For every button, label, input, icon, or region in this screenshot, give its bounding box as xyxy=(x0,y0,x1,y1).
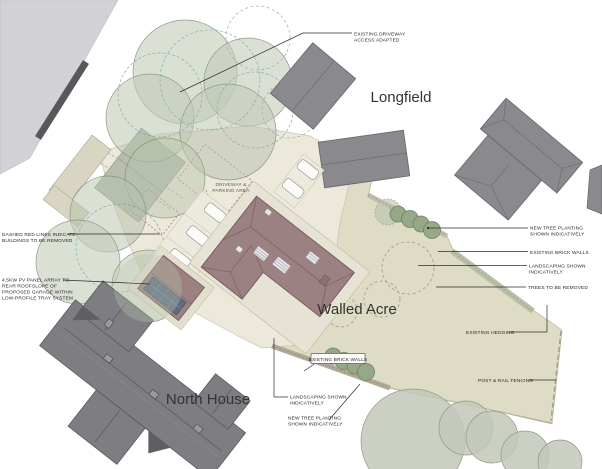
site-plan-svg: EXISTING DRIVEWAY ACCESS ADAPTED DASHED … xyxy=(0,0,602,469)
annotation-new-tree-right: NEW TREE PLANTING xyxy=(530,226,583,232)
annotation-new-tree-right: SHOWN INDICATIVELY xyxy=(530,232,585,238)
annotation-new-tree-bottom: NEW TREE PLANTING xyxy=(288,416,341,422)
annotation-post-rail: POST & RAIL FENCING xyxy=(478,378,533,384)
new-tree xyxy=(424,222,441,239)
leader-new-tree-bottom xyxy=(329,384,360,420)
label-longfield: Longfield xyxy=(371,89,432,106)
annotation-driveway-access: EXISTING DRIVEWAY xyxy=(354,32,406,38)
annotation-brick-walls-bottom: EXISTING BRICK WALLS xyxy=(309,357,368,363)
new-tree xyxy=(358,364,375,381)
annotation-hedging: EXISTING HEDGING xyxy=(466,330,515,336)
annotation-dashed-red: DASHED RED LINES INDICATE xyxy=(2,232,76,238)
annotation-landscaping-bottom: LANDSCAPING SHOWN xyxy=(290,395,347,401)
annotation-pv-panel: REAR ROOFSLOPE OF xyxy=(2,284,57,290)
leader-dot xyxy=(427,227,429,229)
leader-brick-walls-bottom xyxy=(304,364,315,372)
tree-canopy-overlay xyxy=(114,254,182,322)
annotation-landscaping-bottom: INDICATIVELY xyxy=(290,401,325,407)
label-driveway-parking: DRIVEWAY & xyxy=(216,182,248,188)
label-north-house: North House xyxy=(166,391,250,408)
label-driveway-parking: PARKING AREA xyxy=(212,188,250,194)
annotation-trees-removed: TREES TO BE REMOVED xyxy=(528,285,588,291)
annotation-brick-walls-right: EXISTING BRICK WALLS xyxy=(530,250,589,256)
longfield-barn-roof xyxy=(318,130,410,188)
annotation-pv-panel: LOW-PROFILE TRAY SYSTEM xyxy=(2,296,73,302)
annotation-dashed-red: BUILDINGS TO BE REMOVED xyxy=(2,238,73,244)
neighbour-building-edge xyxy=(587,165,602,214)
annotation-landscaping-right: INDICATIVELY xyxy=(529,270,564,276)
annotation-driveway-access: ACCESS ADAPTED xyxy=(354,38,400,44)
label-walled-acre: Walled Acre xyxy=(317,301,396,318)
annotation-new-tree-bottom: SHOWN INDICATIVELY xyxy=(288,422,343,428)
annotation-pv-panel: PROPOSED GARAGE WITHIN xyxy=(2,290,73,296)
annotation-pv-panel: 4.5KW PV PANEL ARRAY TO xyxy=(2,278,69,284)
neighbour-building-roof xyxy=(447,98,583,233)
annotation-landscaping-right: LANDSCAPING SHOWN xyxy=(529,264,586,270)
site-plan: EXISTING DRIVEWAY ACCESS ADAPTED DASHED … xyxy=(0,0,602,469)
